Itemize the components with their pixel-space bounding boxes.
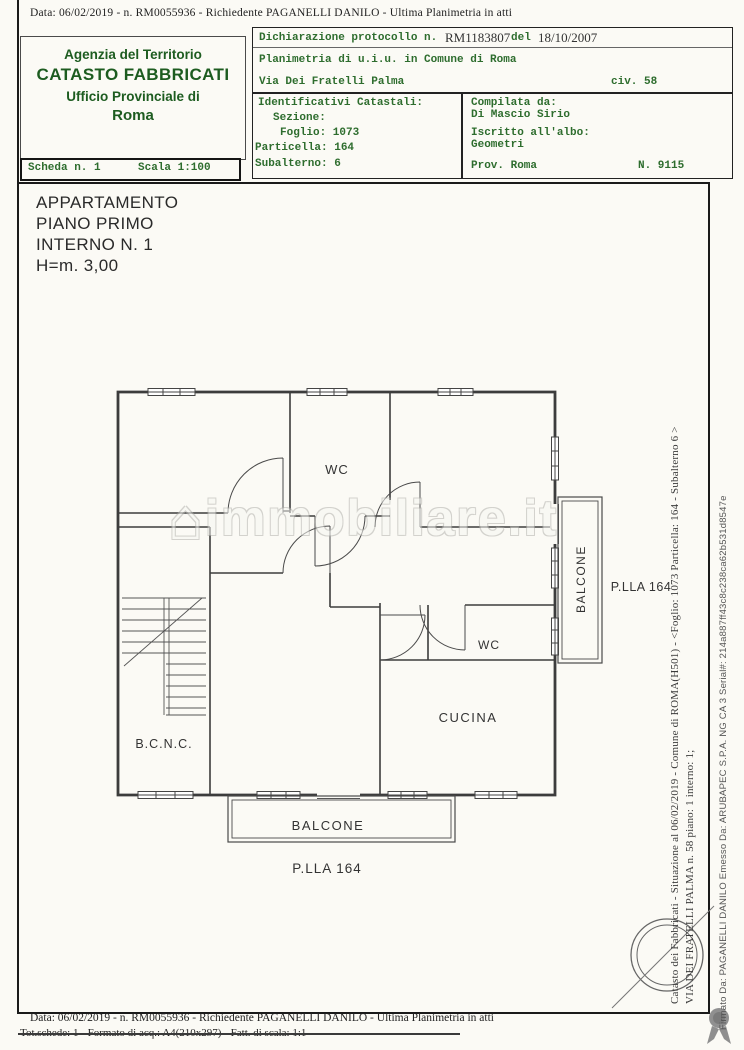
outer-walls — [118, 392, 555, 795]
side-text-catasto: Catasto dei Fabbricati - Situazione al 0… — [669, 426, 681, 1004]
interior-walls — [118, 392, 555, 795]
corner-stamp — [612, 906, 714, 1008]
room-label-wc-top: WC — [325, 462, 349, 477]
label-balcone-right: BALCONE — [574, 545, 588, 613]
watermark: ⌂immobiliare.it — [168, 486, 558, 553]
room-label-wc-mid: WC — [478, 638, 500, 652]
room-label-bcnc: B.C.N.C. — [135, 737, 192, 751]
windows — [138, 389, 559, 799]
label-plla-right: P.LLA 164 — [611, 580, 672, 594]
side-text-address: VIA DEI FRATELLI PALMA n. 58 piano: 1 in… — [684, 750, 696, 1004]
label-balcone-bottom: BALCONE — [292, 818, 365, 833]
room-label-cucina: CUCINA — [439, 710, 498, 725]
staircase — [122, 598, 206, 715]
cadastral-plan-page: { "header": { "top_line": "Data: 06/02/2… — [0, 0, 744, 1050]
watermark-house-icon: ⌂ — [168, 487, 205, 552]
label-plla-bottom: P.LLA 164 — [292, 861, 362, 876]
footer-line-1: Data: 06/02/2019 - n. RM0055936 - Richie… — [30, 1012, 494, 1024]
watermark-text: immobiliare.it — [205, 490, 558, 546]
footer-strike-line — [18, 1033, 460, 1035]
side-text-signature: Firmato Da: PAGANELLI DANILO Emesso Da: … — [718, 495, 729, 1030]
